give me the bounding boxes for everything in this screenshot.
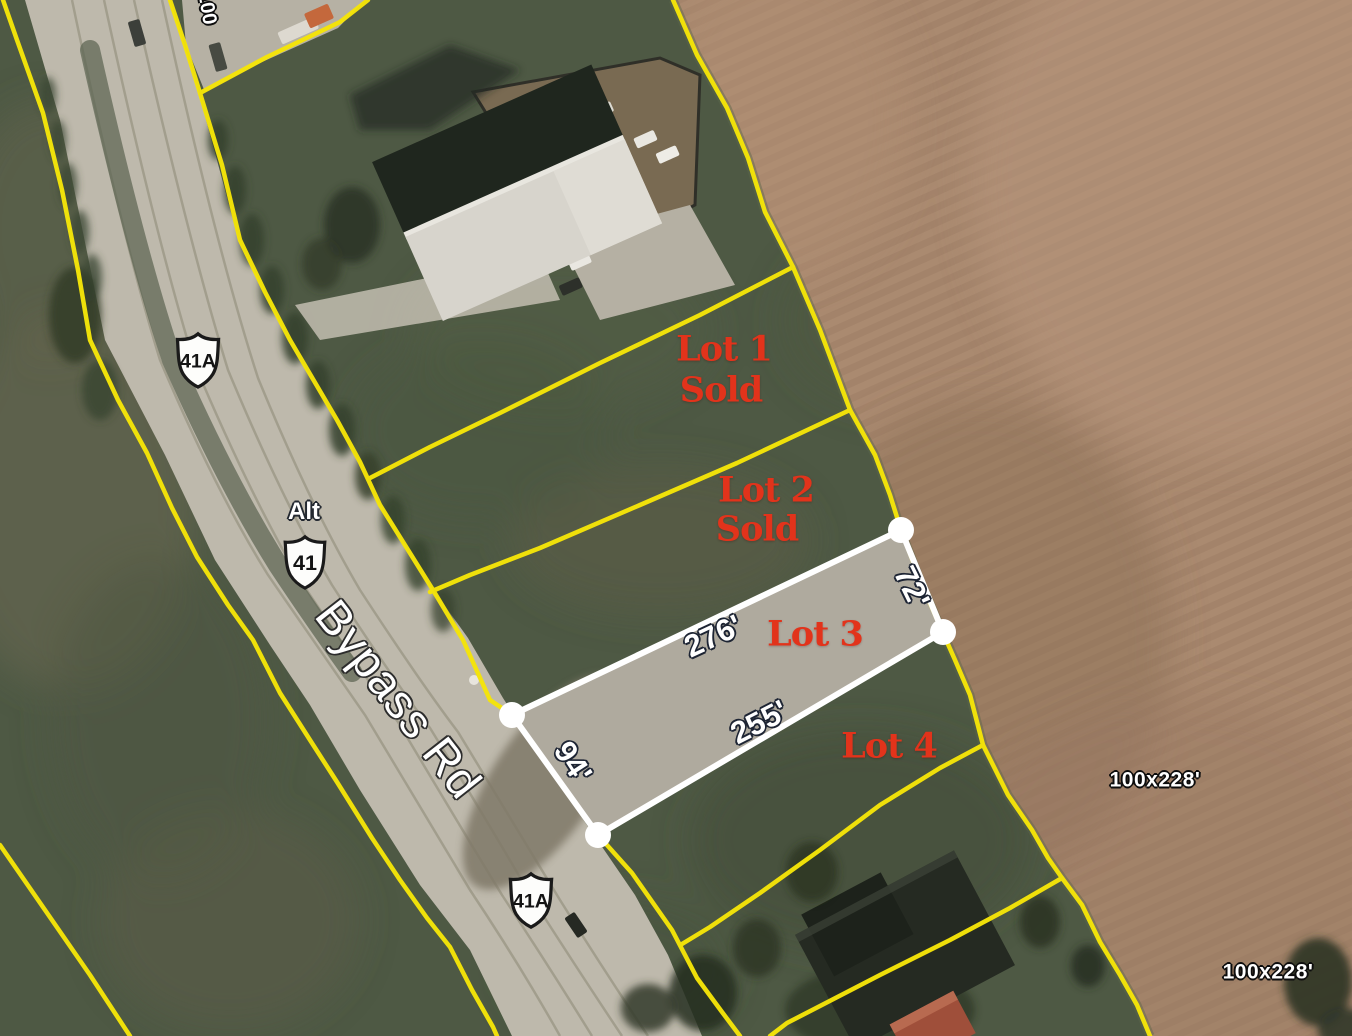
route-number: 41A bbox=[180, 350, 216, 372]
us-route-shield-icon: 41 bbox=[278, 534, 332, 590]
lot4-name-label: Lot 4 bbox=[841, 729, 937, 764]
lot3-corner-marker bbox=[930, 619, 956, 645]
us-route-shield-icon: 41A bbox=[170, 331, 226, 389]
us-route-shield-icon: 41A bbox=[502, 871, 560, 929]
lot3-corner-marker bbox=[888, 517, 914, 543]
lot3-corner-marker bbox=[585, 822, 611, 848]
lot1-status-label: Sold bbox=[680, 373, 762, 408]
lot2-name-label: Lot 2 bbox=[718, 473, 814, 508]
partial-dimension-label: 100 bbox=[194, 0, 219, 26]
route-number: 41A bbox=[513, 890, 549, 912]
alt-route-label: Alt bbox=[288, 500, 320, 524]
aerial-lot-map: 100 Lot 1 Sold Lot 2 Sold Lot 3 Lot 4 27… bbox=[0, 0, 1352, 1036]
route-number: 41 bbox=[293, 550, 317, 575]
parcel-size-label: 100x228' bbox=[1110, 770, 1201, 791]
satellite-imagery bbox=[0, 0, 1352, 1036]
parcel-size-label: 100x228' bbox=[1223, 962, 1314, 983]
lot3-corner-marker bbox=[499, 702, 525, 728]
lot3-name-label: Lot 3 bbox=[767, 617, 863, 652]
lot2-status-label: Sold bbox=[716, 512, 798, 547]
lot1-name-label: Lot 1 bbox=[676, 332, 772, 367]
